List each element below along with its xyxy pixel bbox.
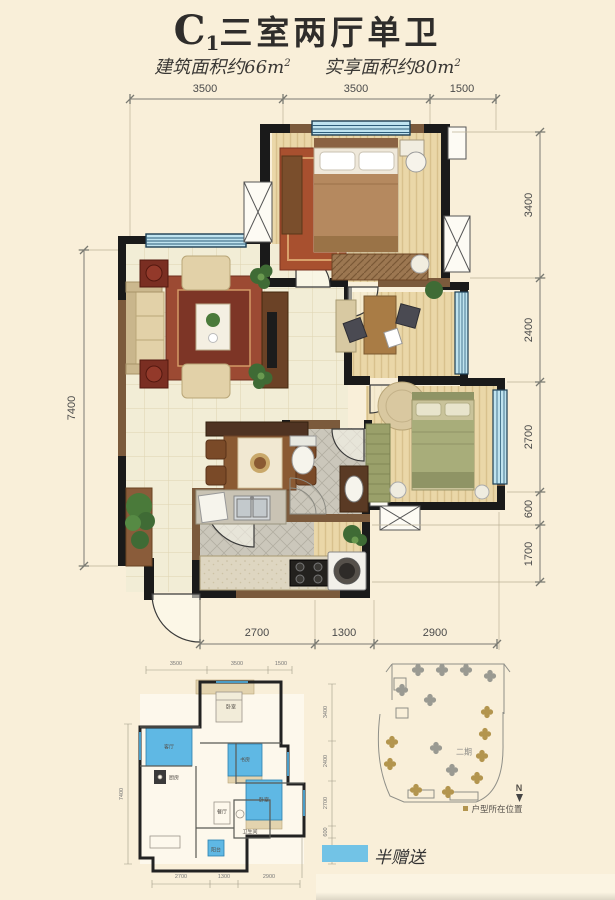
page-title: C1三室两厅单卫 [0,6,615,55]
dim-label-small: 2700 [175,874,187,880]
dim-label-small: 1500 [275,661,287,667]
door-entry [152,594,200,642]
coffee-table [196,304,230,350]
dining-table-icon [224,436,296,490]
stove-icon [290,560,328,586]
dim-label: 1500 [450,83,474,95]
washing-machine-icon [328,552,366,590]
stool [390,482,406,498]
dim-label-small: 2400 [323,755,329,767]
sideboard [206,422,308,436]
bottom-panel [316,874,615,900]
dresser [282,156,302,234]
area-info: 建筑面积约66m2 实享面积约80m2 [0,53,615,79]
lamp [406,152,426,172]
window-icon [146,234,246,247]
title-subscript: 1 [205,31,219,55]
dim-label: 2900 [423,627,447,639]
armchair [182,364,230,398]
dim-label: 2400 [523,318,535,342]
dim-label-small: 1300 [218,874,230,880]
north-label: N [516,783,523,793]
dim-label-small: 3500 [231,661,243,667]
dim-label: 7400 [66,396,78,420]
dim-label-small: 2700 [323,797,329,809]
floorplan-graphics [0,0,615,900]
armchair [182,256,230,290]
window-icon [493,390,507,484]
room-label-bedroom: 卧室 [226,704,236,711]
dim-label-small: 3400 [323,706,329,718]
dim-label: 3500 [344,83,368,95]
bed-icon [412,392,474,490]
dim-label: 3500 [193,83,217,95]
dim-label: 600 [523,500,535,518]
dim-label: 1700 [523,542,535,566]
cutting-board [198,492,228,522]
gift-legend-label: 半赠送 [374,843,425,868]
window-icon [455,292,468,374]
mini-plan [124,666,336,888]
window-icon [312,121,410,135]
dim-label-small: 3500 [170,661,182,667]
location-swatch [463,806,468,811]
ac-unit-box [380,506,420,530]
lamp [475,485,489,499]
ac-unit-box [444,216,470,272]
planter [125,488,155,566]
phase-label: 二期 [456,747,472,758]
dim-label: 1300 [332,627,356,639]
room-label-balcony: 阳台 [211,847,221,854]
room-label-bath: 卫生间 [242,829,257,836]
room-label-living: 客厅 [164,744,174,751]
dim-label: 3400 [523,193,535,217]
toilet-icon [290,436,316,474]
dim-label-small: 7400 [119,788,125,800]
dim-label: 2700 [523,425,535,449]
usable-area: 实享面积约80m2 [324,57,460,78]
room-label-bedroom2: 卧室 [259,797,269,804]
bedroom-2 [366,382,489,502]
site-plan [378,664,523,811]
main-plan [118,121,507,642]
vanity-sink-icon [340,466,368,512]
dim-label: 2700 [245,627,269,639]
room-label-dining: 餐厅 [217,809,227,816]
gift-legend-swatch [322,845,368,862]
sink-icon [234,496,270,520]
stool [411,255,429,273]
built-area: 建筑面积约66m2 [154,57,290,78]
dim-label-small: 2900 [263,874,275,880]
title-prefix: C [174,7,206,54]
dim-label-small: 600 [323,827,329,836]
ac-unit-box [244,182,272,242]
north-arrow-icon [516,794,523,802]
room-label-study: 书房 [240,757,250,764]
wardrobe [366,424,390,502]
location-legend-label: 户型所在位置 [471,803,522,815]
chair [396,304,420,328]
room-label-kitchen: 厨房 [169,775,179,782]
bed-icon [314,138,398,252]
title-text: 三室两厅单卫 [219,13,441,52]
plant-icon [425,281,443,299]
floorplan-page: C1三室两厅单卫 建筑面积约66m2 实享面积约80m2 3500 3500 1… [0,0,615,900]
